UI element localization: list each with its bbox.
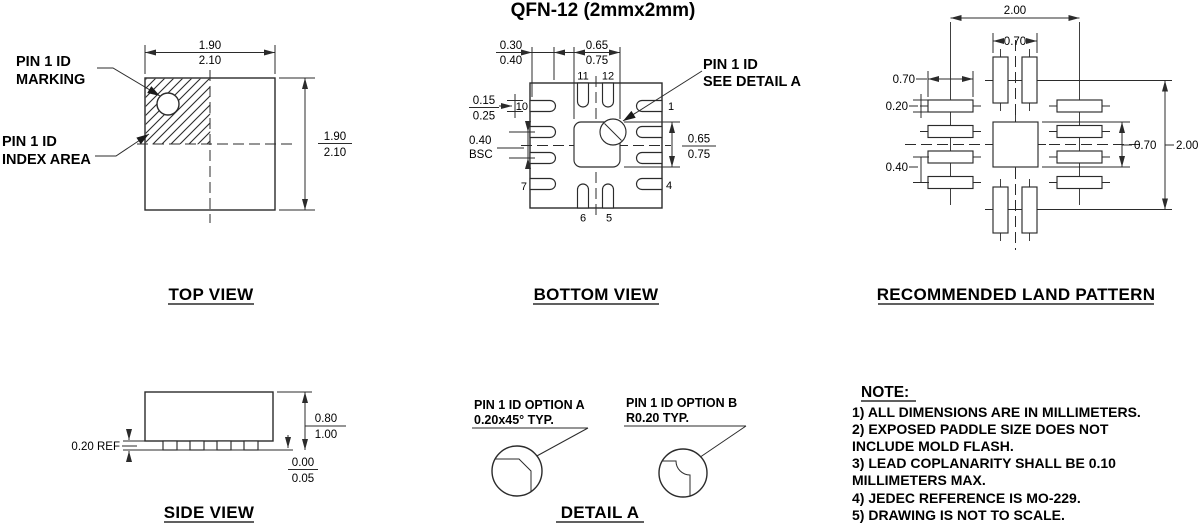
dim-paddle-width-max: 0.75 — [586, 55, 608, 67]
land-pad — [1057, 151, 1102, 163]
lead-pad — [637, 153, 662, 164]
dim-height-min: 0.80 — [315, 413, 337, 425]
dim-width-max: 2.10 — [199, 55, 221, 67]
lead-terminal — [217, 441, 231, 450]
dim-height-max: 1.00 — [315, 429, 337, 441]
dim-top-pads-span: 0.70 — [1004, 36, 1026, 48]
land-pad — [1057, 177, 1102, 189]
lead-terminal — [163, 441, 177, 450]
view-caption: BOTTOM VIEW — [534, 285, 659, 304]
view-caption: SIDE VIEW — [164, 503, 255, 522]
pin1-index-label-line1: PIN 1 ID — [2, 134, 57, 150]
view-caption: DETAIL A — [561, 503, 640, 522]
pin-label-5: 5 — [606, 213, 612, 225]
pin-label-7: 7 — [521, 181, 527, 193]
dim-span-horizontal: 2.00 — [1004, 5, 1026, 17]
lead-pad — [603, 83, 614, 107]
pin1-id-marking-circle — [157, 93, 179, 115]
lead-terminal — [244, 441, 258, 450]
dim-paddle-height-min: 0.65 — [688, 134, 710, 146]
pin1-callout-line1: PIN 1 ID — [703, 57, 758, 73]
lead-pad — [637, 179, 662, 190]
drawing-canvas: QFN-12 (2mmx2mm) 1.90 2.10 1.90 2.10 PIN… — [0, 0, 1200, 526]
land-pad — [1022, 57, 1037, 103]
dim-pitch: 0.40 — [469, 135, 491, 147]
dim-paddle-height-max: 0.75 — [688, 149, 710, 161]
dim-standoff-min: 0.00 — [292, 457, 314, 469]
notes-heading: NOTE: — [861, 384, 909, 401]
lead-terminal — [190, 441, 204, 450]
dim-span-vertical: 2.00 — [1176, 140, 1198, 152]
option-b-label-line2: R0.20 TYP. — [626, 411, 689, 425]
pin1-index-label-line2: INDEX AREA — [2, 152, 91, 168]
note-line: INCLUDE MOLD FLASH. — [852, 438, 1014, 454]
pin-label-12: 12 — [602, 71, 614, 83]
pin1-index-hatch-area — [146, 79, 211, 145]
view-caption: RECOMMENDED LAND PATTERN — [877, 285, 1156, 304]
land-pad — [993, 187, 1008, 233]
note-line: 2) EXPOSED PADDLE SIZE DOES NOT — [852, 421, 1109, 437]
lead-pad — [530, 101, 556, 112]
option-a-label-line1: PIN 1 ID OPTION A — [474, 398, 585, 412]
dim-height-max: 2.10 — [324, 147, 346, 159]
note-line: 3) LEAD COPLANARITY SHALL BE 0.10 — [852, 455, 1116, 471]
detail-circle-option-a — [492, 446, 542, 496]
dim-pad-length: 0.70 — [893, 74, 915, 86]
pin1-callout-line2: SEE DETAIL A — [703, 74, 802, 90]
page-title: QFN-12 (2mmx2mm) — [511, 0, 696, 21]
land-pad — [1022, 187, 1037, 233]
dim-lead-width-min: 0.15 — [473, 95, 495, 107]
dim-lead-length-min: 0.30 — [500, 40, 522, 52]
pin-label-6: 6 — [580, 213, 586, 225]
pin-label-1: 1 — [668, 101, 674, 113]
dim-paddle-width-min: 0.65 — [586, 40, 608, 52]
dim-height-nom: 1.90 — [324, 131, 346, 143]
land-pad — [928, 100, 973, 112]
land-pad — [1057, 100, 1102, 112]
land-pad — [1057, 126, 1102, 138]
note-line: 1) ALL DIMENSIONS ARE IN MILLIMETERS. — [852, 404, 1141, 420]
option-b-label-line1: PIN 1 ID OPTION B — [626, 396, 737, 410]
package-drawing-page: QFN-12 (2mmx2mm) 1.90 2.10 1.90 2.10 PIN… — [0, 0, 1200, 526]
pin-label-4: 4 — [666, 180, 672, 192]
lead-pad — [578, 184, 589, 208]
pin1-marking-label-line1: PIN 1 ID — [16, 54, 71, 70]
pin1-marking-label-line2: MARKING — [16, 72, 85, 88]
dim-lead-length-max: 0.40 — [500, 55, 522, 67]
center-land-pad — [993, 122, 1038, 167]
lead-pad — [578, 83, 589, 107]
land-pad — [928, 126, 973, 138]
lead-pad — [530, 179, 556, 190]
land-pad — [993, 57, 1008, 103]
view-caption: TOP VIEW — [169, 285, 255, 304]
note-line: 5) DRAWING IS NOT TO SCALE. — [852, 507, 1065, 523]
lead-pad — [637, 127, 662, 138]
dim-pitch-qualifier: BSC — [469, 149, 493, 161]
pin-label-11: 11 — [577, 71, 588, 83]
dim-pad-pitch: 0.40 — [886, 162, 908, 174]
note-line: 4) JEDEC REFERENCE IS MO-229. — [852, 490, 1081, 506]
option-a-label-line2: 0.20x45° TYP. — [474, 413, 554, 427]
land-pad — [928, 177, 973, 189]
dim-center-pad-size: 0.70 — [1134, 140, 1156, 152]
dim-pad-width: 0.20 — [886, 101, 908, 113]
dim-lead-width-max: 0.25 — [473, 111, 495, 123]
land-pad — [928, 151, 973, 163]
lead-pad — [603, 184, 614, 208]
dim-lead-thickness: 0.20 REF — [71, 441, 120, 453]
note-line: MILLIMETERS MAX. — [852, 472, 986, 488]
dim-standoff-max: 0.05 — [292, 473, 314, 485]
dim-width-nom: 1.90 — [199, 40, 221, 52]
